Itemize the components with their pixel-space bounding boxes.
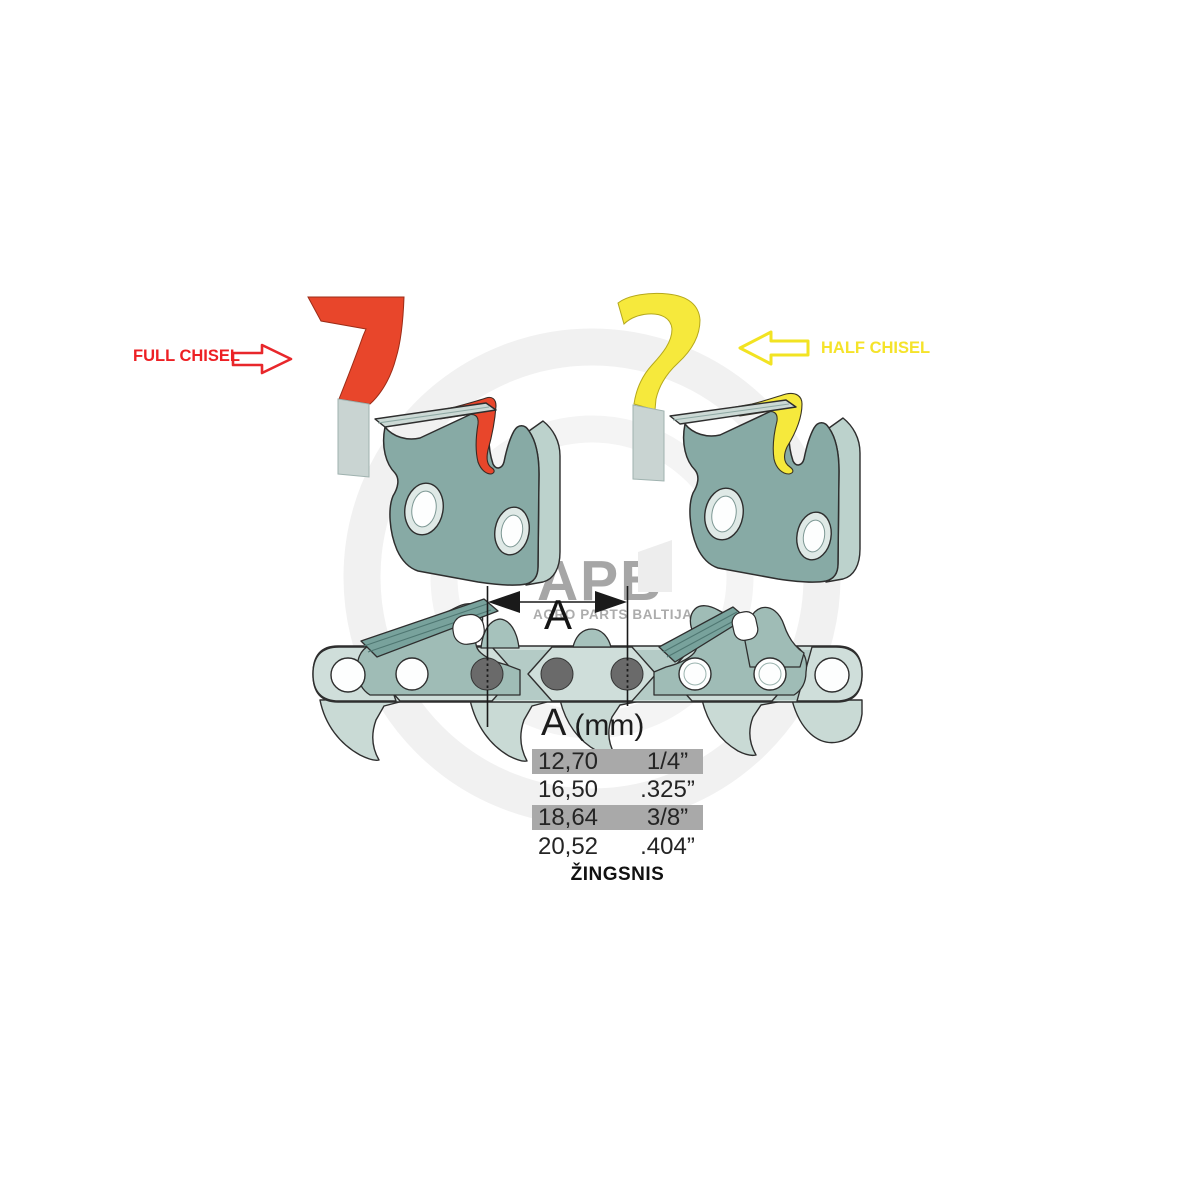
pitch-table-caption: ŽINGSNIS <box>532 864 703 886</box>
pitch-inch-value: .325” <box>632 777 703 802</box>
pitch-table-row: 18,64 3/8” <box>532 805 703 830</box>
pitch-mm-value: 12,70 <box>532 749 604 774</box>
pitch-inch-value: .404” <box>632 834 703 859</box>
pitch-mm-value: 18,64 <box>532 805 604 830</box>
pitch-inch-value: 3/8” <box>632 805 703 830</box>
half-chisel-profile-stem <box>633 405 664 481</box>
half-chisel-label: HALF CHISEL <box>821 339 930 358</box>
chain-rivets <box>471 658 643 690</box>
pitch-mm-value: 16,50 <box>532 777 604 802</box>
diagram-canvas <box>0 0 1188 1188</box>
full-chisel-arrow-icon <box>233 345 291 373</box>
pitch-inch-value: 1/4” <box>632 749 703 774</box>
chain-pitch-diagram: APB AGRO PARTS BALTIJA <box>0 0 1188 1188</box>
half-chisel-cutter-3d <box>670 393 860 582</box>
pitch-table-row: 20,52 .404” <box>532 834 703 859</box>
pitch-table-header-symbol: A <box>541 704 566 742</box>
pitch-mm-value: 20,52 <box>532 834 604 859</box>
half-chisel-arrow-icon <box>740 332 808 364</box>
full-chisel-label: FULL CHISEL <box>133 347 240 366</box>
dimension-arrowhead-right <box>595 591 627 613</box>
pitch-table-header-unit: (mm) <box>574 711 644 741</box>
full-chisel-profile-stem <box>338 399 369 477</box>
pitch-table-header: A (mm) <box>541 704 644 742</box>
pitch-table-row: 12,70 1/4” <box>532 749 703 774</box>
pitch-table-row: 16,50 .325” <box>532 777 703 802</box>
pitch-dimension-label: A <box>544 594 572 636</box>
